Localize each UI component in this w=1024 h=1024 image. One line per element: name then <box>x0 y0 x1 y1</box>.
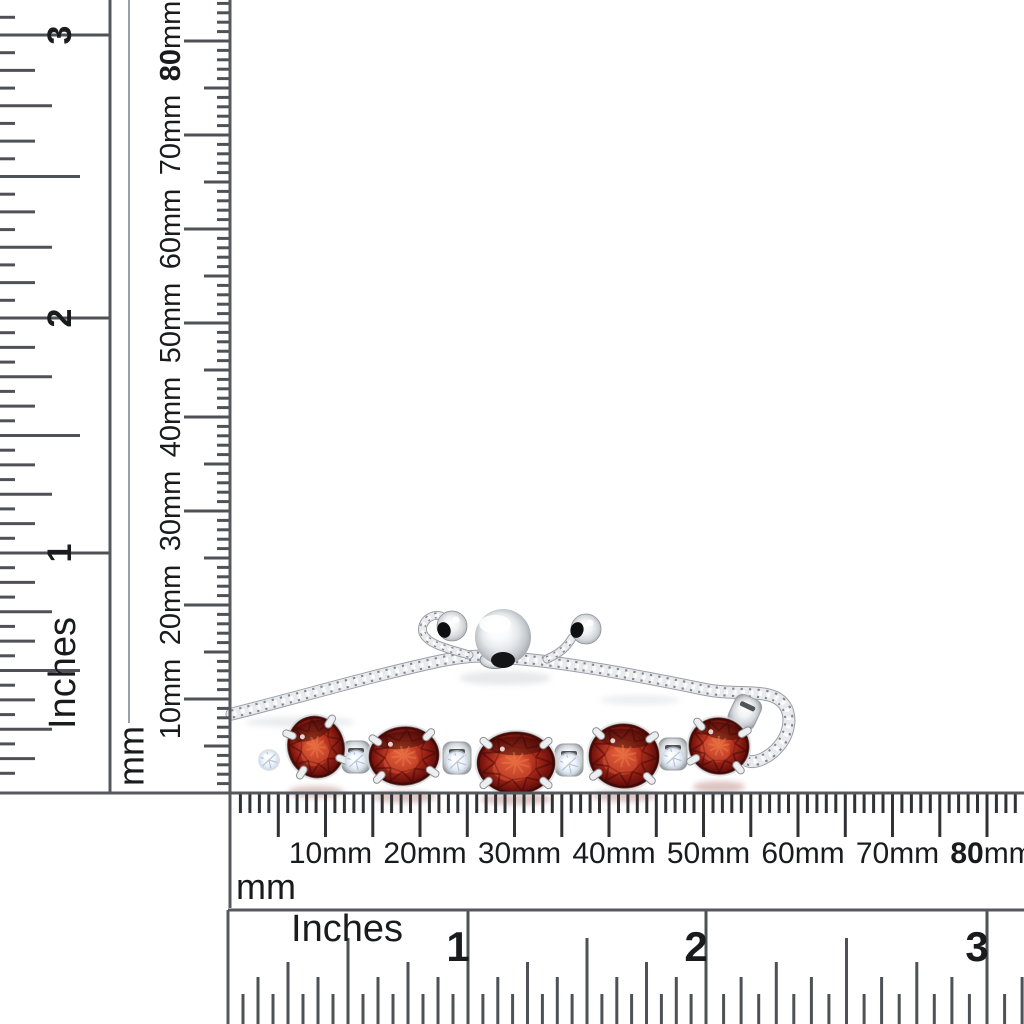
product-photo: Sterling silver adjustable bolo bracelet… <box>0 0 1024 1024</box>
slider-ball-hole <box>491 652 515 668</box>
ruler-number: 3 <box>965 923 988 970</box>
mm-label: 60mm <box>761 837 844 870</box>
reflection <box>600 695 680 705</box>
mm-label: 10mm <box>289 837 372 870</box>
mm-label: 70mm <box>155 95 187 176</box>
mm-label: 60mm <box>155 189 187 270</box>
garnet-stone <box>363 721 444 791</box>
ruler-number: 2 <box>684 923 707 970</box>
mm-label: 40mm <box>155 377 187 458</box>
unit-label-mm: mm <box>236 866 296 907</box>
reflection <box>459 671 551 685</box>
scene-canvas: 321Inches 10mm20mm30mm40mm50mm60mm70mm80… <box>0 0 1024 1024</box>
ruler-number: 1 <box>41 544 79 563</box>
unit-label-inches: Inches <box>291 908 403 950</box>
accent-stone <box>662 747 685 770</box>
ruler-border-lines <box>0 0 1024 1024</box>
dangle-ball-highlight <box>587 620 594 627</box>
ruler-number: 3 <box>41 26 79 45</box>
garnet-stone <box>584 719 664 793</box>
garnet-bracelet <box>232 609 789 797</box>
accent-stone <box>557 752 581 776</box>
ruler-bottom-inches: 123Inches <box>228 908 1022 1024</box>
mm-label: 80mm <box>155 1 187 82</box>
unit-label-inches: Inches <box>42 617 84 729</box>
mm-label: 20mm <box>155 565 187 646</box>
mm-label: 30mm <box>478 837 561 870</box>
mm-label: 20mm <box>383 837 466 870</box>
ruler-bottom-mm: 10mm20mm30mm40mm50mm60mm70mm80mmmm <box>236 793 1024 907</box>
mm-label: 80mm <box>950 837 1024 870</box>
unit-label-mm: mm <box>111 726 152 786</box>
mm-label: 50mm <box>667 837 750 870</box>
box-chain <box>232 656 500 714</box>
mm-label: 40mm <box>572 837 655 870</box>
mm-label: 30mm <box>155 471 187 552</box>
mm-label: 10mm <box>155 659 187 740</box>
ruler-number: 2 <box>41 309 79 328</box>
mm-label: 70mm <box>856 837 939 870</box>
accent-stone <box>258 749 280 771</box>
dangle-ball-highlight <box>453 617 460 624</box>
box-chain <box>547 638 572 659</box>
ruler-number: 1 <box>446 923 469 970</box>
accent-stone <box>345 750 368 773</box>
garnet-stone <box>475 730 558 797</box>
ruler-left-inches: 321Inches <box>0 17 110 773</box>
slider-ball-highlight <box>479 615 511 633</box>
reflection <box>693 781 745 793</box>
accent-stone <box>445 750 469 774</box>
mm-label: 50mm <box>155 283 187 364</box>
